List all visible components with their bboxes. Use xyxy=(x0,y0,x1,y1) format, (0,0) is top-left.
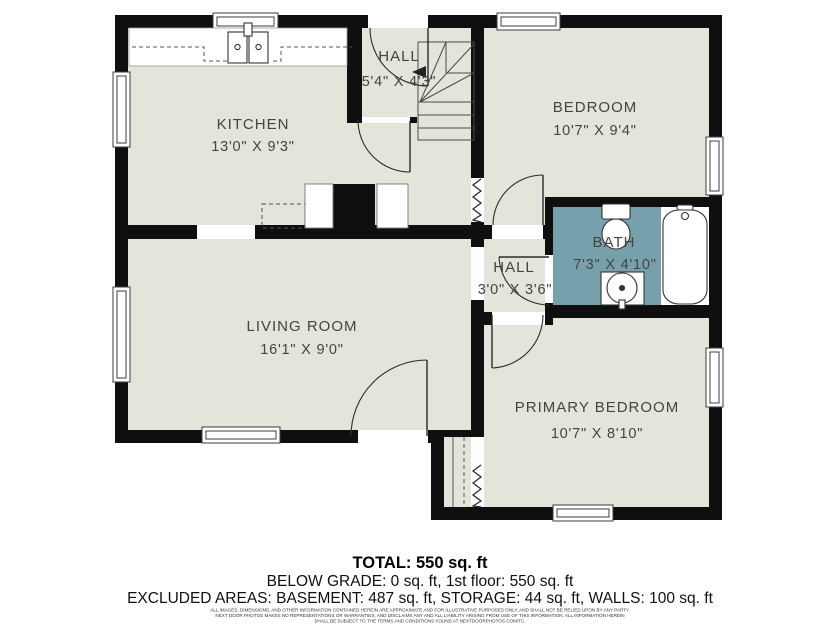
appliance-left xyxy=(305,184,333,228)
window-bedroom-right xyxy=(706,137,723,195)
living-room-label: LIVING ROOM xyxy=(246,318,357,335)
disclaimer-line-1: ALL IMAGES, DIMENSIONS, AND OTHER INFORM… xyxy=(210,608,630,613)
floor-plan-canvas: KITCHEN 13'0" X 9'3" HALL 5'4" X 4'3" BE… xyxy=(0,0,840,630)
below-grade-text: BELOW GRADE: 0 sq. ft, 1st floor: 550 sq… xyxy=(267,573,574,590)
bath-sink-icon xyxy=(601,272,644,309)
cased-opening-kitchen-living xyxy=(197,225,255,239)
bedroom-dims: 10'7" X 9'4" xyxy=(553,123,636,139)
hall-top-label: HALL xyxy=(378,48,420,65)
window-living-left xyxy=(113,287,130,382)
total-area-text: TOTAL: 550 sq. ft xyxy=(352,554,488,572)
floor-plan-page: KITCHEN 13'0" X 9'3" HALL 5'4" X 4'3" BE… xyxy=(0,0,840,630)
window-kitchen-left xyxy=(113,72,130,147)
bedroom-label: BEDROOM xyxy=(553,99,638,116)
window-bedroom-top xyxy=(497,13,560,30)
disclaimer-line-2: NEXT DOOR PHOTOS MAKES NO REPRESENTATION… xyxy=(215,613,624,618)
bath-label: BATH xyxy=(593,234,636,251)
closet-opening xyxy=(471,437,484,507)
disclaimer-line-3: SHALL BE SUBJECT TO THE TERMS AND CONDIT… xyxy=(314,619,525,624)
hall-mid-dims: 3'0" X 3'6" xyxy=(478,282,553,298)
entry-door-opening xyxy=(368,15,428,28)
primary-bedroom-label: PRIMARY BEDROOM xyxy=(515,399,679,416)
kitchen-dims: 13'0" X 9'3" xyxy=(211,139,294,155)
bath-dims: 7'3" X 4'10" xyxy=(573,257,656,273)
primary-bedroom-dims: 10'7" X 8'10" xyxy=(551,426,643,442)
summary-block: TOTAL: 550 sq. ft BELOW GRADE: 0 sq. ft,… xyxy=(127,554,713,624)
window-primary-bottom xyxy=(553,505,613,521)
window-living-bottom xyxy=(202,427,280,443)
side-door-opening xyxy=(358,430,428,443)
appliance-right xyxy=(377,184,408,228)
hall-top-dims: 5'4" X 4'3" xyxy=(362,74,437,90)
bathtub-icon xyxy=(663,205,707,304)
window-primary-right xyxy=(706,348,723,407)
excluded-areas-text: EXCLUDED AREAS: BASEMENT: 487 sq. ft, ST… xyxy=(127,590,713,607)
hall-mid-label: HALL xyxy=(493,259,535,276)
kitchen-label: KITCHEN xyxy=(217,116,290,133)
chimney xyxy=(333,184,375,228)
living-room-dims: 16'1" X 9'0" xyxy=(260,342,343,358)
